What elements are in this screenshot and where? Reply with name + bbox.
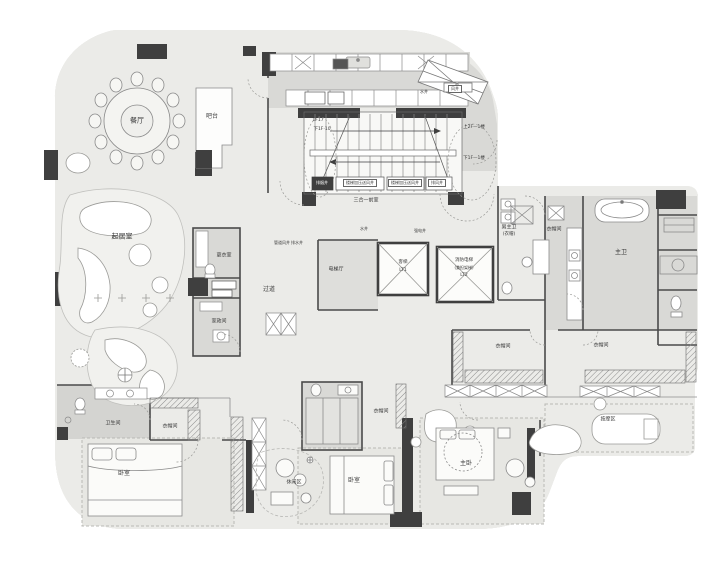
- pressurization-shaft-box-1: [336, 177, 384, 190]
- elevator-hall-floor: [318, 240, 378, 310]
- cooktop: [333, 59, 348, 69]
- smoke-shaft-box: [312, 177, 333, 190]
- exhaust-shaft-box: [426, 177, 452, 190]
- floor-plan-drawing: [0, 0, 704, 575]
- appliance-box-2: [328, 92, 344, 104]
- plant: [71, 349, 89, 367]
- dresser: [533, 240, 549, 274]
- pressurization-shaft-box-2: [387, 177, 424, 190]
- massage-table: [592, 414, 660, 444]
- bath-3-cabinet: [306, 398, 358, 444]
- corridor-storage: [266, 313, 296, 335]
- desk: [271, 492, 293, 505]
- appliance-box-1: [305, 92, 325, 104]
- floor-plan-canvas: 餐厅吧台起居室更衣室家政间过道电梯厅三合一前室男主卫(衣帽)衣帽间主卫衣帽间衣帽…: [0, 0, 704, 575]
